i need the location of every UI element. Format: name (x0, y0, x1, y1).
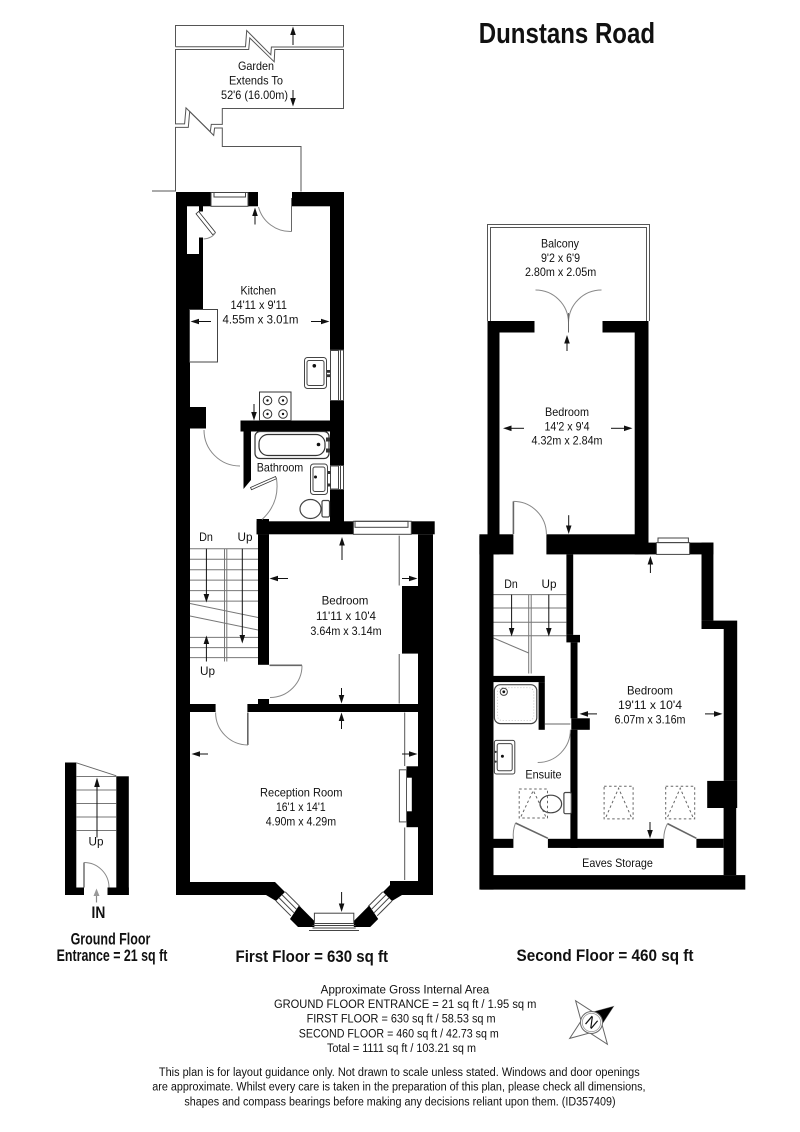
svg-text:Up: Up (200, 664, 215, 678)
svg-text:4.32m x 2.84m: 4.32m x 2.84m (532, 434, 603, 448)
svg-text:Entrance = 21 sq ft: Entrance = 21 sq ft (57, 947, 168, 965)
svg-text:Dn: Dn (199, 530, 213, 544)
svg-text:GROUND FLOOR ENTRANCE = 21 sq: GROUND FLOOR ENTRANCE = 21 sq ft / 1.95 … (274, 999, 537, 1011)
svg-text:Ensuite: Ensuite (525, 768, 561, 782)
svg-text:IN: IN (92, 903, 106, 922)
svg-text:shapes and compass bearings be: shapes and compass bearings before makin… (184, 1096, 615, 1108)
svg-text:FIRST FLOOR = 630 sq ft / 58.5: FIRST FLOOR = 630 sq ft / 58.53 sq m (307, 1014, 496, 1026)
svg-text:3.64m x 3.14m: 3.64m x 3.14m (310, 624, 381, 638)
svg-text:14'2 x 9'4: 14'2 x 9'4 (545, 420, 590, 434)
svg-text:Bedroom: Bedroom (322, 594, 369, 608)
svg-text:14'11 x 9'11: 14'11 x 9'11 (230, 298, 287, 312)
svg-text:This plan is for layout guidan: This plan is for layout guidance only. N… (159, 1067, 640, 1079)
svg-text:9'2 x 6'9: 9'2 x 6'9 (541, 251, 580, 265)
svg-text:Eaves Storage: Eaves Storage (582, 856, 653, 870)
svg-text:Up: Up (542, 577, 557, 591)
svg-text:Reception Room: Reception Room (260, 786, 343, 800)
svg-text:Extends To: Extends To (229, 74, 283, 88)
svg-text:4.55m x 3.01m: 4.55m x 3.01m (223, 313, 299, 327)
svg-text:Garden: Garden (238, 59, 274, 73)
svg-text:Second Floor = 460 sq ft: Second Floor = 460 sq ft (517, 946, 694, 965)
svg-text:6.07m x 3.16m: 6.07m x 3.16m (615, 713, 686, 727)
svg-text:Kitchen: Kitchen (241, 284, 277, 298)
svg-text:Bedroom: Bedroom (545, 405, 589, 419)
svg-text:are approximate. Whilst every: are approximate. Whilst every care is ta… (152, 1082, 645, 1094)
svg-text:Total = 1111 sq ft / 103.21 sq: Total = 1111 sq ft / 103.21 sq m (327, 1043, 476, 1055)
svg-text:Up: Up (238, 530, 253, 544)
svg-text:Dn: Dn (504, 577, 518, 591)
svg-text:4.90m x 4.29m: 4.90m x 4.29m (266, 815, 336, 829)
svg-text:Balcony: Balcony (541, 237, 579, 251)
svg-text:19'11 x 10'4: 19'11 x 10'4 (618, 698, 682, 712)
svg-text:52'6 (16.00m): 52'6 (16.00m) (221, 88, 288, 102)
svg-text:Up: Up (89, 835, 104, 849)
svg-text:SECOND FLOOR = 460 sq ft / 42.: SECOND FLOOR = 460 sq ft / 42.73 sq m (299, 1029, 499, 1041)
svg-text:16'1 x 14'1: 16'1 x 14'1 (276, 800, 326, 814)
svg-text:Approximate Gross Internal Are: Approximate Gross Internal Area (321, 985, 490, 997)
svg-text:Bathroom: Bathroom (257, 461, 304, 475)
svg-text:Ground Floor: Ground Floor (71, 931, 151, 949)
svg-text:First Floor = 630 sq ft: First Floor = 630 sq ft (236, 947, 389, 966)
svg-text:Dunstans Road: Dunstans Road (479, 18, 655, 50)
svg-text:Bedroom: Bedroom (627, 684, 673, 698)
svg-text:11'11 x 10'4: 11'11 x 10'4 (316, 609, 376, 623)
svg-text:2.80m x 2.05m: 2.80m x 2.05m (525, 265, 596, 279)
